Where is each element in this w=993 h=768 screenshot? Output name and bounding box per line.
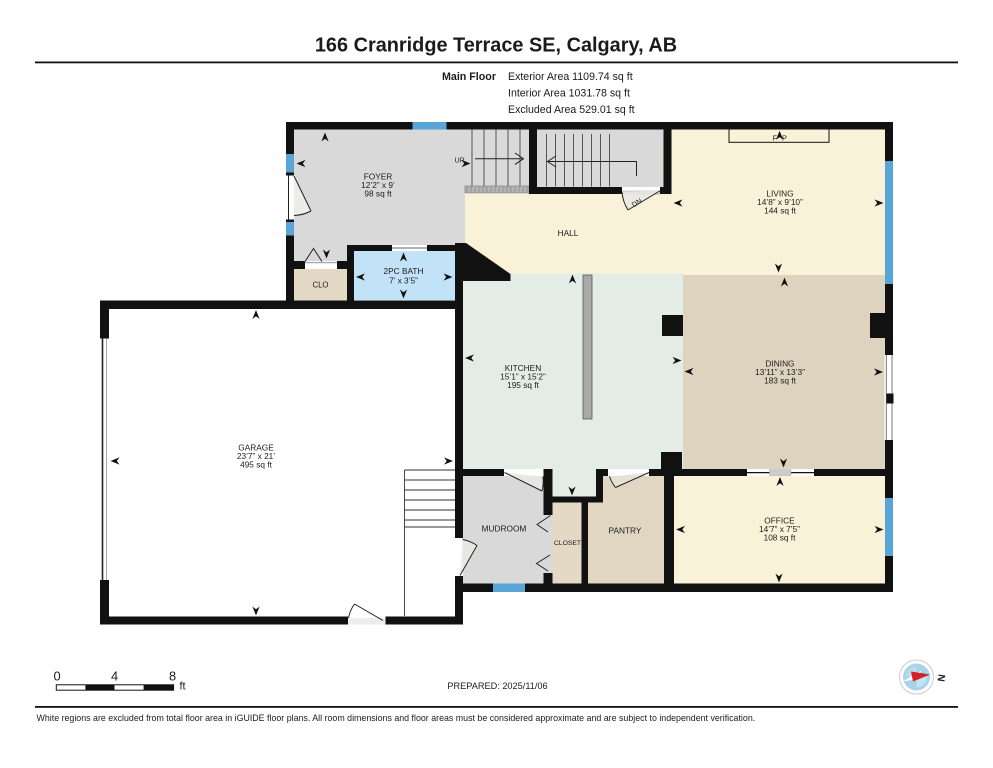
- svg-text:7’ x 3’5”: 7’ x 3’5”: [389, 276, 418, 286]
- svg-text:PREPARED: 2025/11/06: PREPARED: 2025/11/06: [447, 681, 547, 691]
- svg-text:UP: UP: [455, 155, 465, 164]
- svg-text:Main Floor: Main Floor: [442, 71, 496, 83]
- svg-text:Exterior Area 1109.74 sq ft: Exterior Area 1109.74 sq ft: [508, 71, 633, 83]
- svg-text:195 sq ft: 195 sq ft: [507, 380, 540, 390]
- svg-text:0: 0: [53, 669, 60, 684]
- svg-text:F: F: [773, 133, 778, 142]
- svg-text:White regions are excluded fro: White regions are excluded from total fl…: [37, 713, 756, 723]
- svg-text:P: P: [782, 133, 787, 142]
- svg-text:8: 8: [169, 669, 176, 684]
- svg-text:HALL: HALL: [558, 228, 579, 238]
- svg-text:Excluded Area 529.01 sq ft: Excluded Area 529.01 sq ft: [508, 104, 635, 116]
- svg-text:PANTRY: PANTRY: [609, 526, 642, 536]
- svg-text:98 sq ft: 98 sq ft: [364, 188, 392, 198]
- svg-text:183 sq ft: 183 sq ft: [764, 375, 797, 385]
- svg-text:2PC BATH: 2PC BATH: [384, 266, 424, 276]
- svg-text:MUDROOM: MUDROOM: [482, 524, 527, 534]
- svg-text:ft: ft: [180, 681, 186, 693]
- svg-text:108 sq ft: 108 sq ft: [764, 532, 797, 542]
- svg-text:CLO: CLO: [312, 281, 328, 290]
- svg-text:144 sq ft: 144 sq ft: [764, 205, 797, 215]
- svg-text:166 Cranridge Terrace SE, Calg: 166 Cranridge Terrace SE, Calgary, AB: [315, 35, 677, 57]
- svg-text:495 sq ft: 495 sq ft: [240, 459, 273, 469]
- svg-text:4: 4: [111, 669, 118, 684]
- svg-text:Interior Area 1031.78 sq ft: Interior Area 1031.78 sq ft: [508, 87, 630, 99]
- svg-text:CLOSET: CLOSET: [554, 540, 581, 547]
